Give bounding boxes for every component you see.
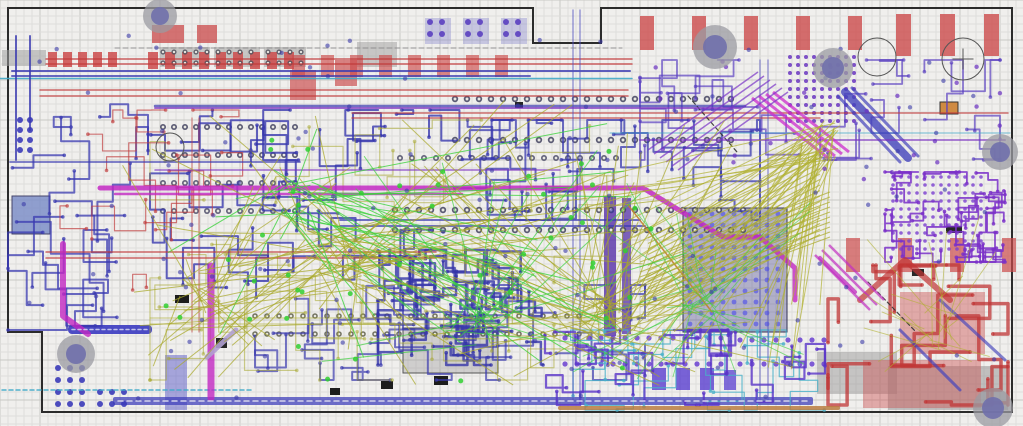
smd-pad — [1002, 238, 1016, 272]
smd-pad — [984, 14, 999, 56]
smd-pad — [148, 52, 158, 69]
pcb-rect — [940, 102, 958, 114]
smd-pad — [940, 14, 955, 56]
pcb-viewport — [0, 0, 1023, 426]
pcb-rect — [676, 368, 690, 390]
pcb-rect — [197, 25, 217, 43]
pcb-canvas[interactable] — [0, 0, 1023, 426]
smd-pad — [896, 14, 911, 56]
smd-pad — [182, 52, 192, 69]
pcb-rect — [381, 381, 393, 389]
smd-pad — [744, 16, 758, 50]
smd-pad — [848, 16, 862, 50]
smd-pad — [846, 238, 860, 272]
smd-pad — [796, 16, 810, 50]
pcb-rect — [12, 196, 50, 234]
pcb-rect — [330, 388, 340, 395]
smd-pad — [233, 52, 243, 69]
smd-pad — [640, 16, 654, 50]
